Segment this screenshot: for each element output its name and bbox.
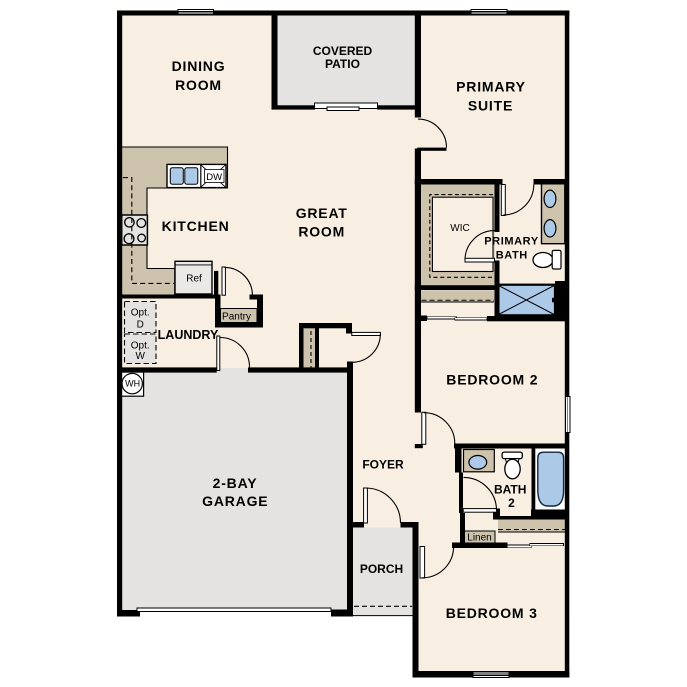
svg-text:COVERED: COVERED	[313, 44, 373, 58]
svg-text:Opt.: Opt.	[131, 308, 150, 319]
svg-text:BEDROOM 2: BEDROOM 2	[446, 372, 538, 388]
svg-text:DW: DW	[206, 172, 222, 183]
svg-text:Pantry: Pantry	[222, 311, 251, 322]
svg-text:2: 2	[508, 496, 515, 510]
svg-text:BEDROOM 3: BEDROOM 3	[446, 605, 538, 621]
svg-text:ROOM: ROOM	[298, 224, 345, 240]
svg-text:PRIMARY: PRIMARY	[484, 236, 539, 248]
svg-text:BATH: BATH	[494, 482, 526, 496]
svg-text:Ref: Ref	[186, 274, 202, 285]
svg-text:SUITE: SUITE	[468, 98, 513, 114]
svg-text:WIC: WIC	[450, 223, 469, 234]
svg-text:BATH: BATH	[496, 250, 528, 262]
svg-text:2-BAY: 2-BAY	[213, 475, 258, 491]
svg-text:GARAGE: GARAGE	[202, 493, 268, 509]
svg-text:DINING: DINING	[172, 58, 226, 74]
svg-text:PATIO: PATIO	[325, 57, 360, 71]
svg-text:D: D	[137, 320, 144, 331]
svg-text:FOYER: FOYER	[362, 458, 404, 472]
svg-text:Opt.: Opt.	[131, 341, 150, 352]
svg-text:KITCHEN: KITCHEN	[162, 218, 230, 234]
svg-text:PORCH: PORCH	[360, 562, 403, 576]
svg-text:GREAT: GREAT	[296, 205, 348, 221]
svg-text:PRIMARY: PRIMARY	[456, 79, 526, 95]
svg-text:W: W	[135, 351, 145, 362]
svg-text:ROOM: ROOM	[175, 77, 222, 93]
svg-text:WH: WH	[125, 378, 140, 388]
svg-text:LAUNDRY: LAUNDRY	[158, 328, 219, 342]
svg-text:Linen: Linen	[467, 532, 491, 543]
